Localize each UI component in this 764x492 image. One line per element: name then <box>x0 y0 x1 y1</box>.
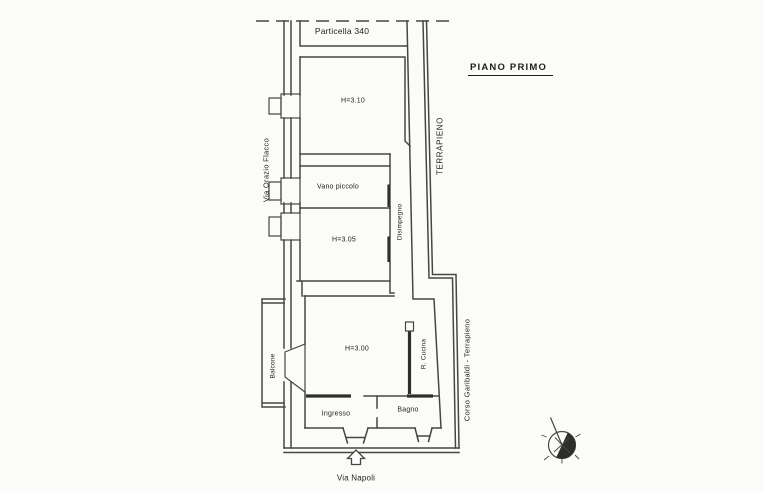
door-jambs <box>306 185 433 397</box>
floor-title: PIANO PRIMO <box>468 62 553 76</box>
floor-plan-drawing <box>0 0 764 492</box>
entrance-recesses <box>343 428 432 443</box>
outer-walls <box>284 21 459 453</box>
label-bagno: Bagno <box>397 407 418 414</box>
label-vano-piccolo: Vano piccolo <box>317 184 359 191</box>
label-ingresso: Ingresso <box>322 411 350 418</box>
parcel-label: Particella 340 <box>315 26 369 36</box>
street-label-via-orazio-flacco: Via Orazio Flacco <box>262 138 271 202</box>
label-room-h300: H=3.00 <box>345 346 369 353</box>
compass-icon <box>542 418 581 464</box>
label-room-h305: H=3.05 <box>332 237 356 244</box>
floor-plan-page: PIANO PRIMO Particella 340 H=3.10 Vano p… <box>0 0 764 492</box>
street-label-corso-garibaldi: Corso Garibaldi - Terrapieno <box>463 319 472 421</box>
internal-walls <box>297 57 441 428</box>
label-room-h310: H=3.10 <box>341 98 365 105</box>
label-balcone: Balcone <box>270 354 277 379</box>
label-r-cucina: R. Cucina <box>421 339 428 369</box>
street-label-via-napoli: Via Napoli <box>337 474 375 483</box>
label-disimpegno: Disimpegno <box>397 204 404 240</box>
street-label-terrapieno: TERRAPIENO <box>436 117 445 175</box>
balcony-door <box>285 344 305 392</box>
